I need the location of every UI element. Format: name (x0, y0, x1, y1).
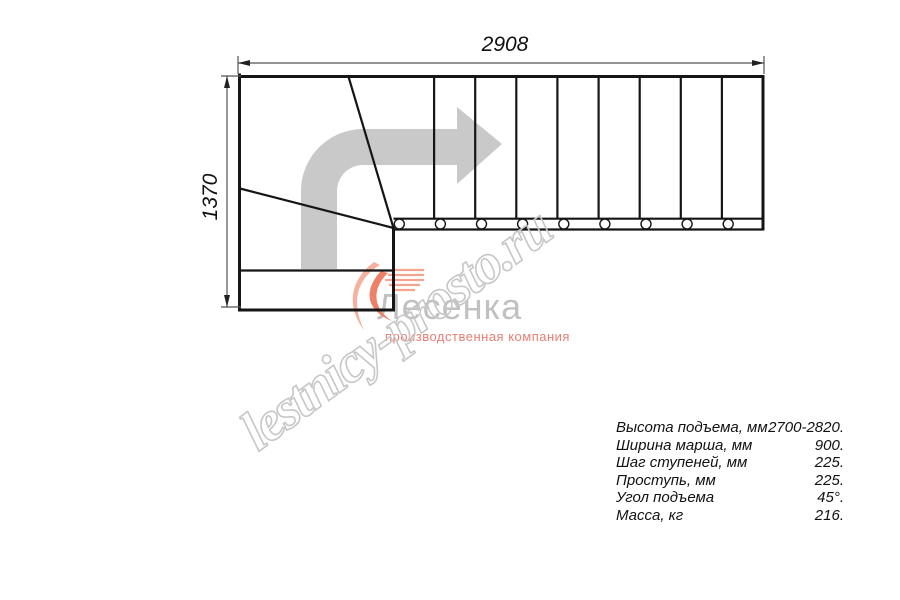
spec-value: 900. (815, 437, 844, 455)
spec-value: 225. (815, 454, 844, 472)
watermark-text: lestnicy-prosto.ru (229, 196, 563, 462)
spec-value: 45°. (817, 489, 844, 507)
spec-label: Шаг ступеней, мм (616, 454, 747, 472)
spec-label: Угол подъема (616, 489, 714, 507)
technical-drawing-canvas: Лесенка производственная компания (0, 0, 900, 600)
spec-row: Угол подъема 45°. (616, 489, 844, 507)
spec-value: 225. (815, 472, 844, 490)
spec-row: Шаг ступеней, мм 225. (616, 454, 844, 472)
spec-label: Масса, кг (616, 507, 683, 525)
spec-row: Ширина марша, мм 900. (616, 437, 844, 455)
spec-label: Высота подъема, мм (616, 419, 768, 437)
spec-value: 2700-2820. (768, 419, 844, 437)
spec-list: Высота подъема, мм 2700-2820. Ширина мар… (616, 419, 844, 525)
spec-value: 216. (815, 507, 844, 525)
baluster-circles (394, 219, 733, 229)
spec-row: Проступь, мм 225. (616, 472, 844, 490)
spec-row: Высота подъема, мм 2700-2820. (616, 419, 844, 437)
spec-row: Масса, кг 216. (616, 507, 844, 525)
spec-label: Ширина марша, мм (616, 437, 752, 455)
spec-label: Проступь, мм (616, 472, 716, 490)
